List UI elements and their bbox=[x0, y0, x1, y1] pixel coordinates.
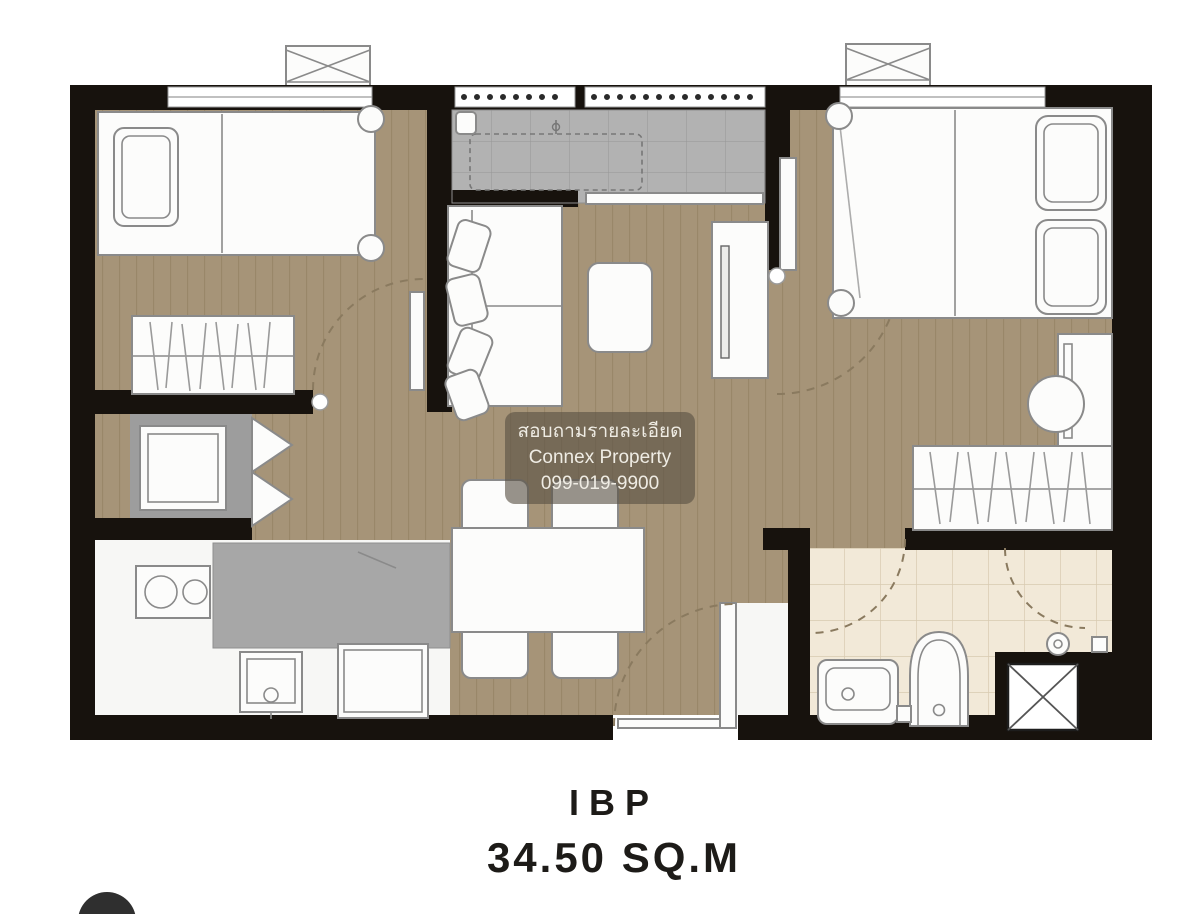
vent-window-kitchen-2 bbox=[585, 87, 765, 107]
bed-post bbox=[358, 235, 384, 261]
watermark-line-2: Connex Property bbox=[529, 445, 672, 471]
bed-post bbox=[826, 103, 852, 129]
unit-type-label: IBP bbox=[0, 782, 1200, 824]
ventilation-shaft bbox=[1008, 664, 1078, 730]
wall-switch-box bbox=[456, 112, 476, 134]
single-bed bbox=[98, 106, 384, 261]
ac-unit-right bbox=[846, 44, 930, 88]
kitchen-sink bbox=[240, 652, 302, 719]
vent-window-kitchen-1 bbox=[455, 87, 575, 107]
washing-machine bbox=[338, 644, 428, 718]
window-right-bedroom bbox=[840, 87, 1045, 107]
pillow bbox=[114, 128, 178, 226]
pillow bbox=[1036, 220, 1106, 314]
stool bbox=[1028, 376, 1084, 432]
floor-drain bbox=[1092, 637, 1107, 652]
watermark-line-1: สอบถามรายละเอียด bbox=[518, 419, 683, 445]
tv bbox=[721, 246, 729, 358]
bed-post bbox=[828, 290, 854, 316]
door-leaf bbox=[410, 292, 424, 390]
entry-door-leaf bbox=[720, 603, 736, 728]
watermark-line-3: 099-019-9900 bbox=[541, 471, 659, 497]
wardrobe-right bbox=[913, 446, 1112, 530]
bathroom-vanity bbox=[818, 660, 898, 724]
wall-bathroom bbox=[788, 548, 810, 730]
coffee-table bbox=[588, 263, 652, 352]
floor-plan-page: สอบถามรายละเอียด Connex Property 099-019… bbox=[0, 0, 1200, 914]
entry-nook-floor bbox=[736, 603, 788, 715]
bed-post bbox=[358, 106, 384, 132]
double-bed bbox=[826, 103, 1112, 318]
pillow bbox=[1036, 116, 1106, 210]
kitchen-counter-top-floor bbox=[452, 110, 765, 203]
wardrobe-left bbox=[132, 316, 294, 394]
sofa bbox=[443, 206, 562, 422]
window-left-bedroom bbox=[168, 87, 372, 107]
stove bbox=[136, 566, 210, 618]
refrigerator bbox=[140, 426, 226, 510]
counter-front-edge bbox=[586, 193, 763, 204]
unit-area-label: 34.50 SQ.M bbox=[0, 834, 1200, 882]
dining-table bbox=[452, 528, 644, 632]
watermark-badge: สอบถามรายละเอียด Connex Property 099-019… bbox=[505, 412, 695, 504]
tv-console bbox=[712, 222, 768, 378]
windows bbox=[168, 87, 1045, 107]
kitchen-counter bbox=[213, 543, 450, 648]
ac-unit-left bbox=[286, 46, 370, 90]
sliding-door-leaf bbox=[780, 158, 796, 270]
